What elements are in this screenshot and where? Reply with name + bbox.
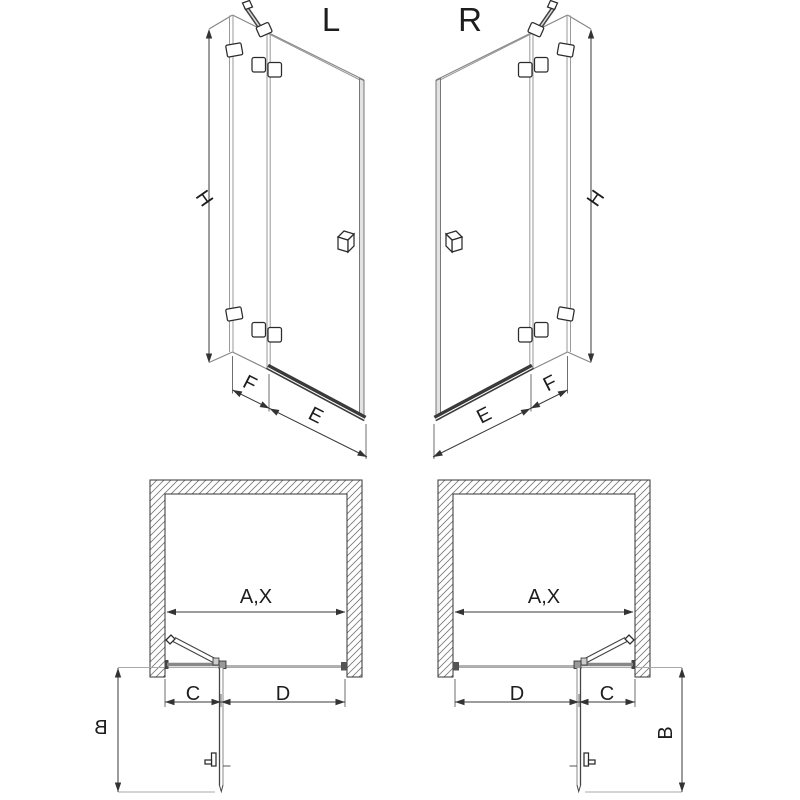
dim-label-d-left: D xyxy=(276,683,290,705)
dim-label-f-right: F xyxy=(540,371,561,396)
dim-label-e-right: E xyxy=(473,403,495,429)
variant-label-left: L xyxy=(322,1,340,38)
dim-label-c-left: C xyxy=(186,683,200,705)
elevation-left-view xyxy=(206,1,369,460)
dim-label-d-right: D xyxy=(510,683,524,705)
dim-label-h-right: H xyxy=(583,186,609,210)
shower-door-technical-diagram: L R H F E H F E A,X C D B A,X D C B xyxy=(0,0,800,800)
dim-label-b-left: B xyxy=(94,717,107,739)
dim-label-h-left: H xyxy=(191,186,217,210)
diagram-page: L R H F E H F E A,X C D B A,X D C B xyxy=(0,0,800,800)
plan-right-view xyxy=(438,480,685,792)
dim-label-e-left: E xyxy=(305,403,327,429)
elevation-right-view xyxy=(432,1,595,460)
dim-label-ax-right: A,X xyxy=(528,586,560,608)
plan-left-view xyxy=(115,480,362,792)
dim-label-c-right: C xyxy=(600,683,614,705)
dim-label-f-left: F xyxy=(239,371,260,396)
dim-label-ax-left: A,X xyxy=(240,586,272,608)
dim-label-b-right: B xyxy=(655,726,677,739)
variant-label-right: R xyxy=(458,1,482,38)
